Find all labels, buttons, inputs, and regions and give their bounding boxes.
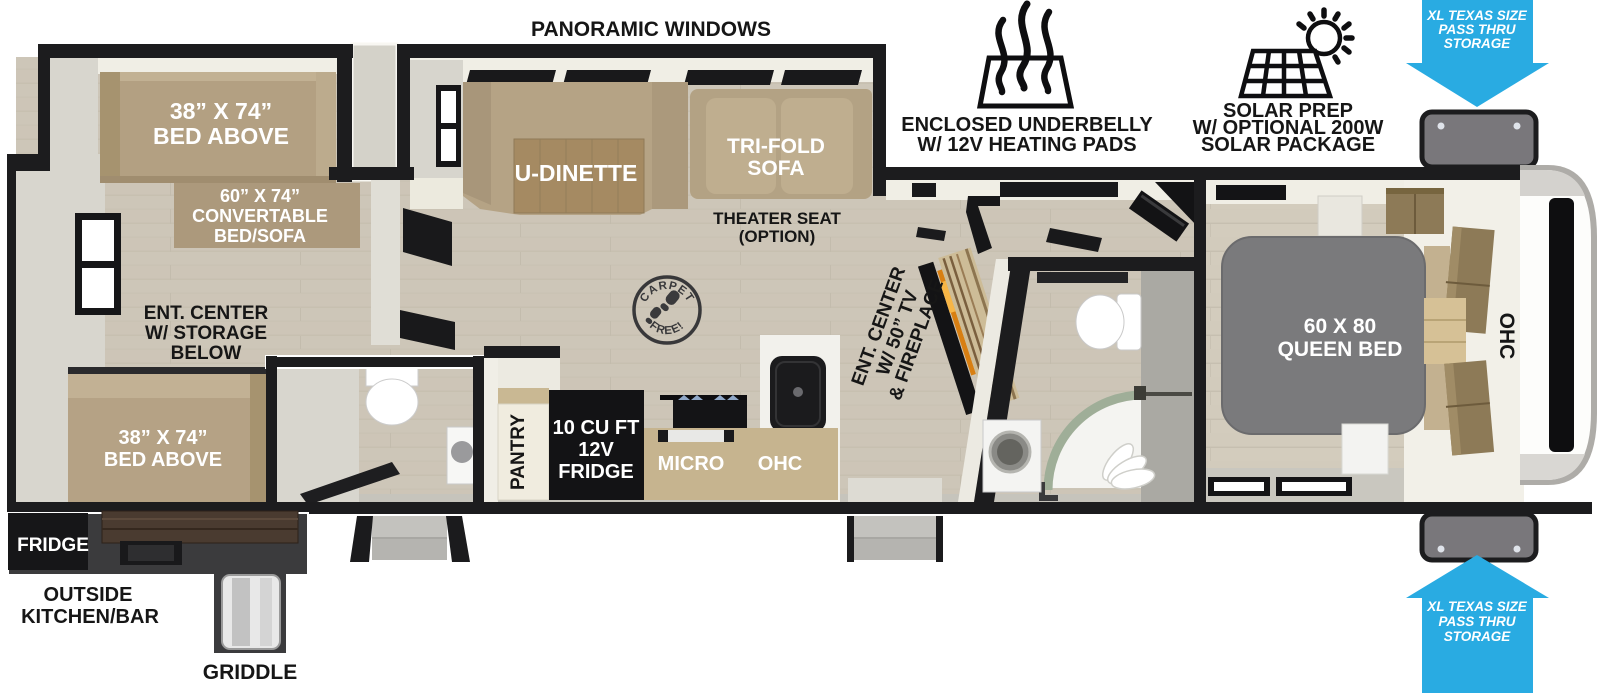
svg-text:BELOW: BELOW [171,343,242,364]
svg-text:W/ STORAGE: W/ STORAGE [145,323,267,344]
svg-text:BED/SOFA: BED/SOFA [214,226,306,246]
svg-text:FRIDGE: FRIDGE [558,461,634,483]
svg-text:STORAGE: STORAGE [1444,629,1512,644]
svg-text:THEATER SEAT: THEATER SEAT [713,209,841,228]
svg-text:PANTRY: PANTRY [508,414,529,490]
svg-text:10 CU FT: 10 CU FT [553,417,640,439]
svg-text:60” X 74”: 60” X 74” [220,186,300,206]
svg-text:ENCLOSED UNDERBELLY: ENCLOSED UNDERBELLY [901,114,1153,136]
svg-text:QUEEN BED: QUEEN BED [1278,338,1403,361]
svg-text:XL TEXAS SIZE: XL TEXAS SIZE [1426,599,1528,614]
svg-text:STORAGE: STORAGE [1444,36,1512,51]
svg-text:PASS THRU: PASS THRU [1438,22,1516,37]
svg-text:W/ 12V HEATING PADS: W/ 12V HEATING PADS [917,134,1136,156]
svg-text:XL TEXAS SIZE: XL TEXAS SIZE [1426,8,1528,23]
svg-text:(OPTION): (OPTION) [739,227,816,246]
svg-text:MICRO: MICRO [658,453,725,475]
svg-text:U-DINETTE: U-DINETTE [515,160,638,186]
svg-text:PASS THRU: PASS THRU [1438,614,1516,629]
svg-text:ENT. CENTER: ENT. CENTER [144,303,269,324]
svg-text:38” X 74”: 38” X 74” [119,427,208,449]
svg-text:SOLAR PACKAGE: SOLAR PACKAGE [1201,134,1375,156]
svg-text:CONVERTABLE: CONVERTABLE [192,206,328,226]
svg-text:KITCHEN/BAR: KITCHEN/BAR [21,606,159,628]
svg-text:OHC: OHC [1495,313,1518,360]
svg-text:FRIDGE: FRIDGE [17,535,89,556]
svg-text:OHC: OHC [758,453,802,475]
svg-text:BED ABOVE: BED ABOVE [153,123,289,149]
svg-text:TRI-FOLD: TRI-FOLD [727,135,825,158]
svg-text:OUTSIDE: OUTSIDE [44,584,133,606]
svg-text:60 X 80: 60 X 80 [1304,315,1376,338]
svg-text:GRIDDLE: GRIDDLE [203,661,298,684]
svg-text:BED ABOVE: BED ABOVE [104,449,222,471]
svg-text:38” X 74”: 38” X 74” [170,98,272,124]
svg-text:PANORAMIC WINDOWS: PANORAMIC WINDOWS [531,18,771,41]
svg-text:12V: 12V [578,439,614,461]
svg-text:SOFA: SOFA [747,157,804,180]
